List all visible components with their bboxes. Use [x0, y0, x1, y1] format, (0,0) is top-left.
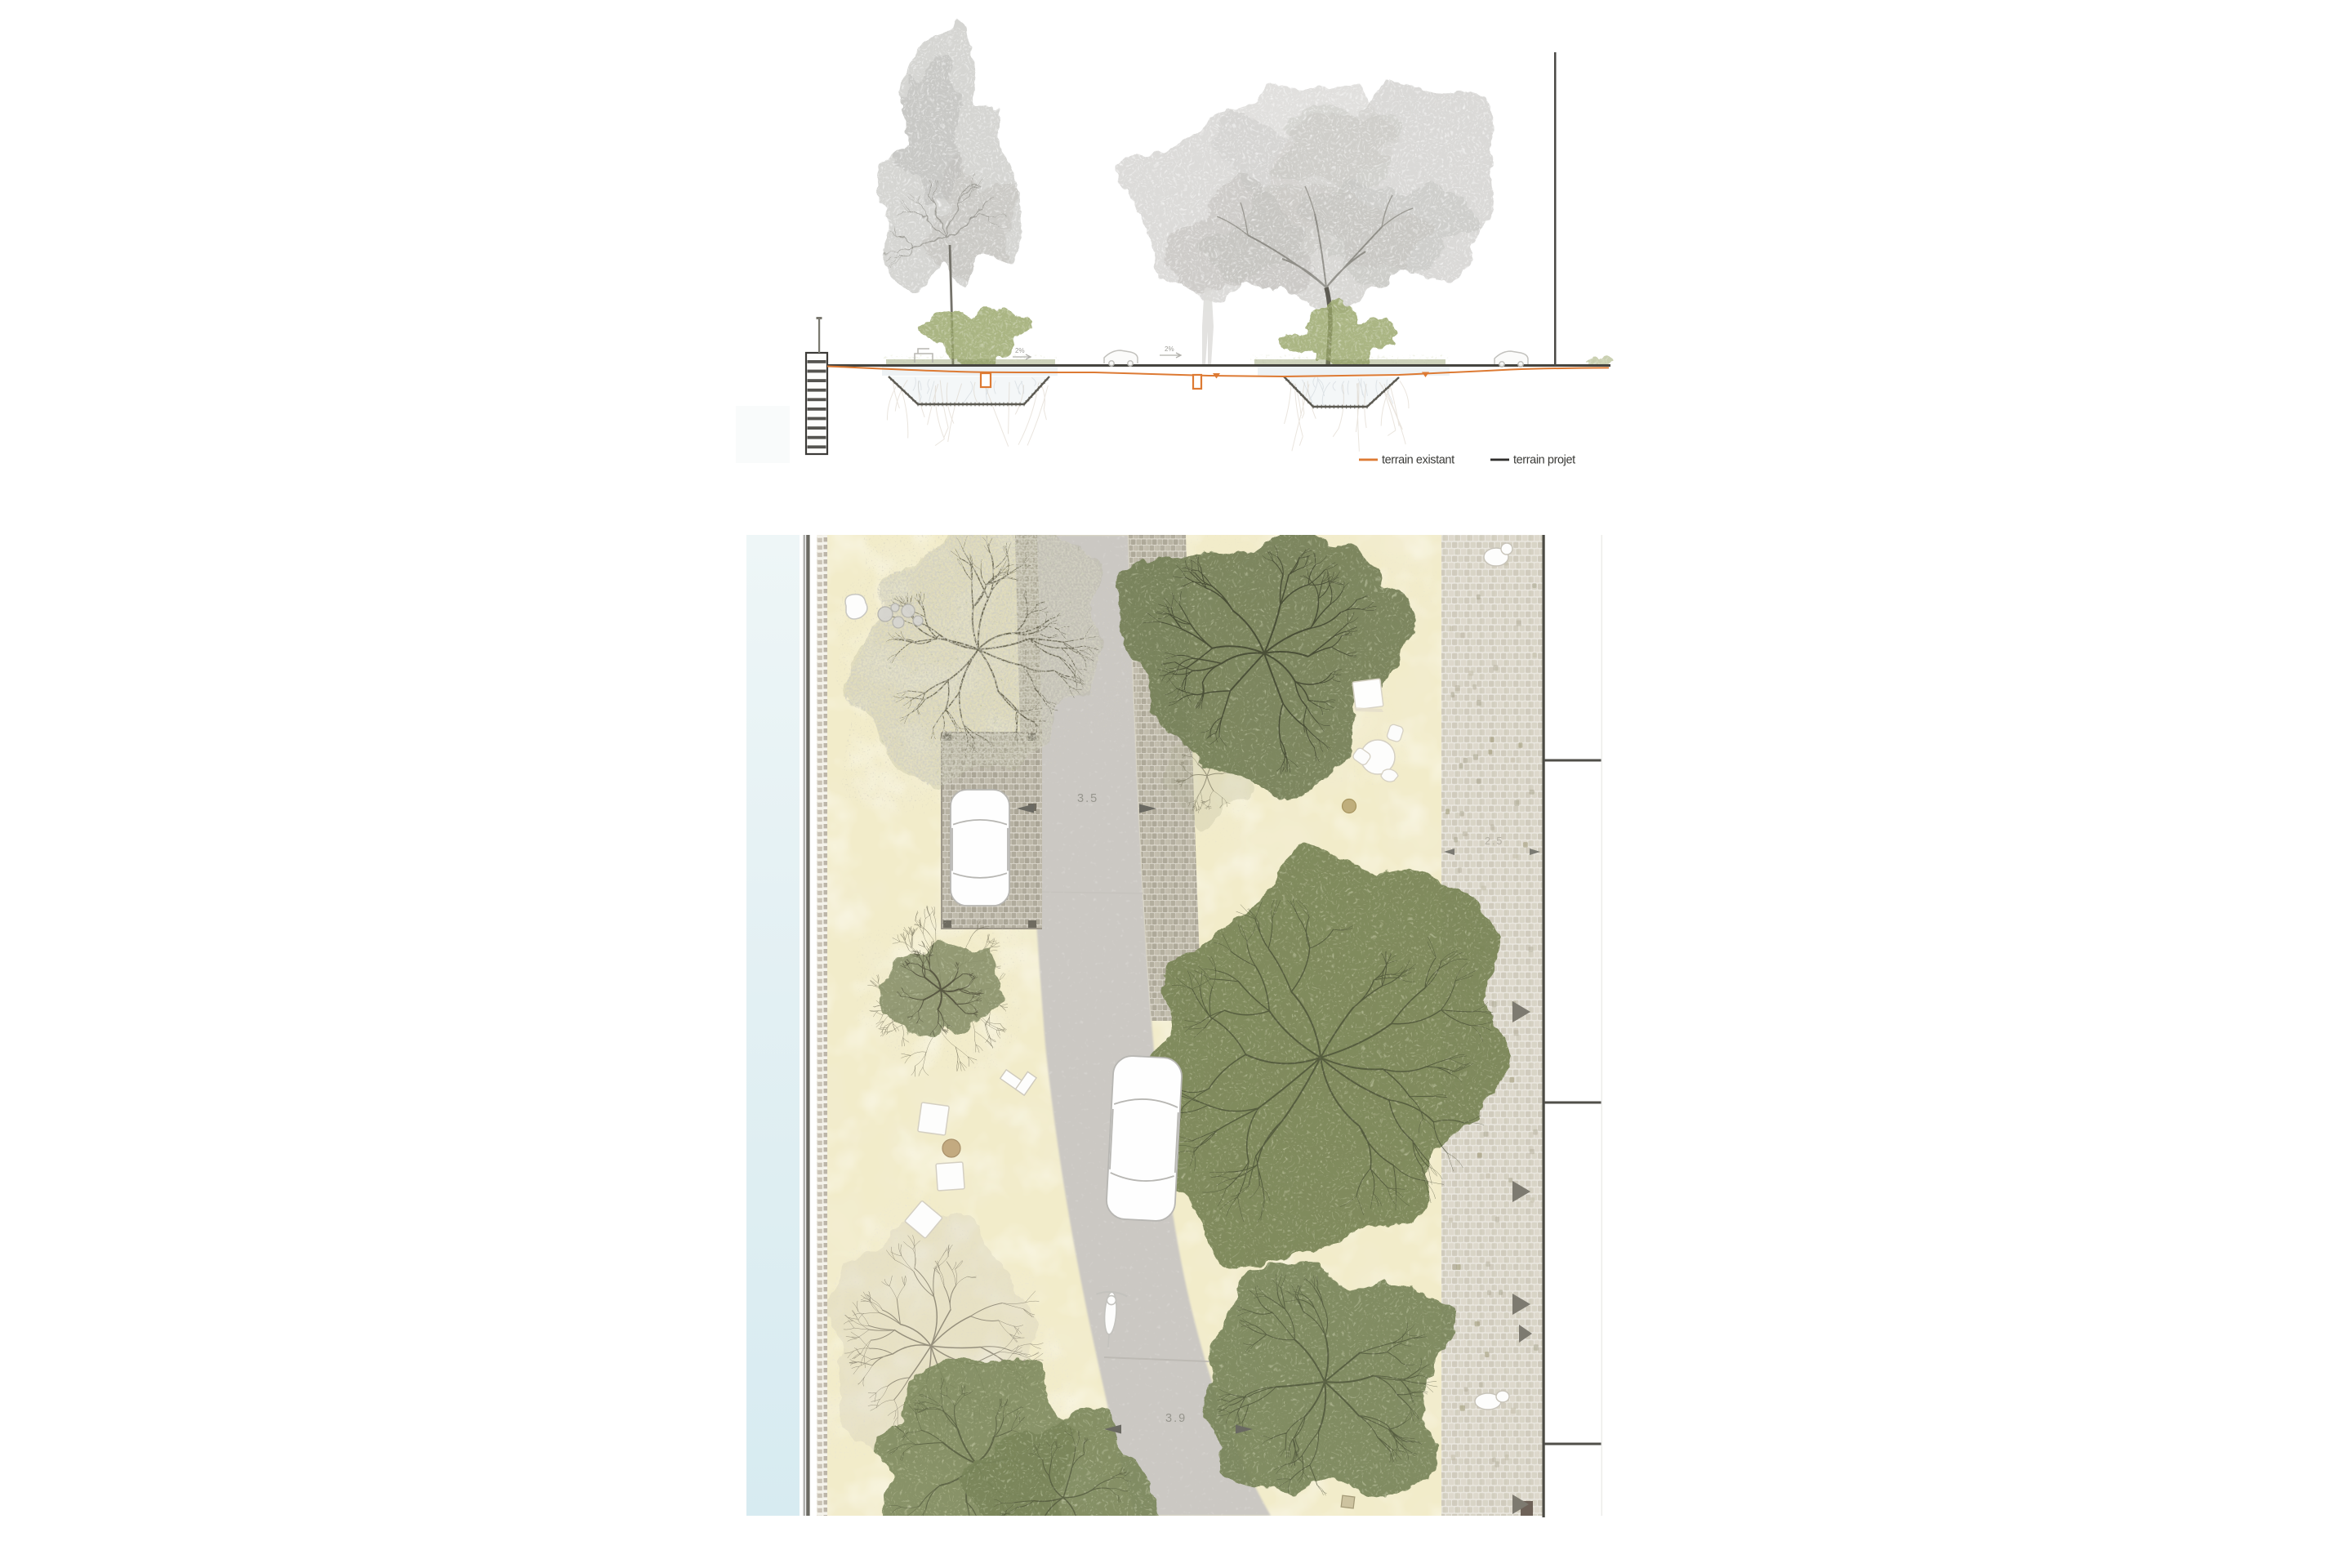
svg-text:terrain projet: terrain projet: [1513, 454, 1575, 467]
svg-text:2.5: 2.5: [1485, 835, 1503, 847]
svg-text:2%: 2%: [1165, 345, 1174, 353]
svg-text:3.9: 3.9: [1165, 1412, 1187, 1425]
svg-text:3.5: 3.5: [1077, 792, 1098, 805]
svg-text:2%: 2%: [1015, 347, 1025, 354]
svg-text:terrain existant: terrain existant: [1382, 454, 1454, 467]
